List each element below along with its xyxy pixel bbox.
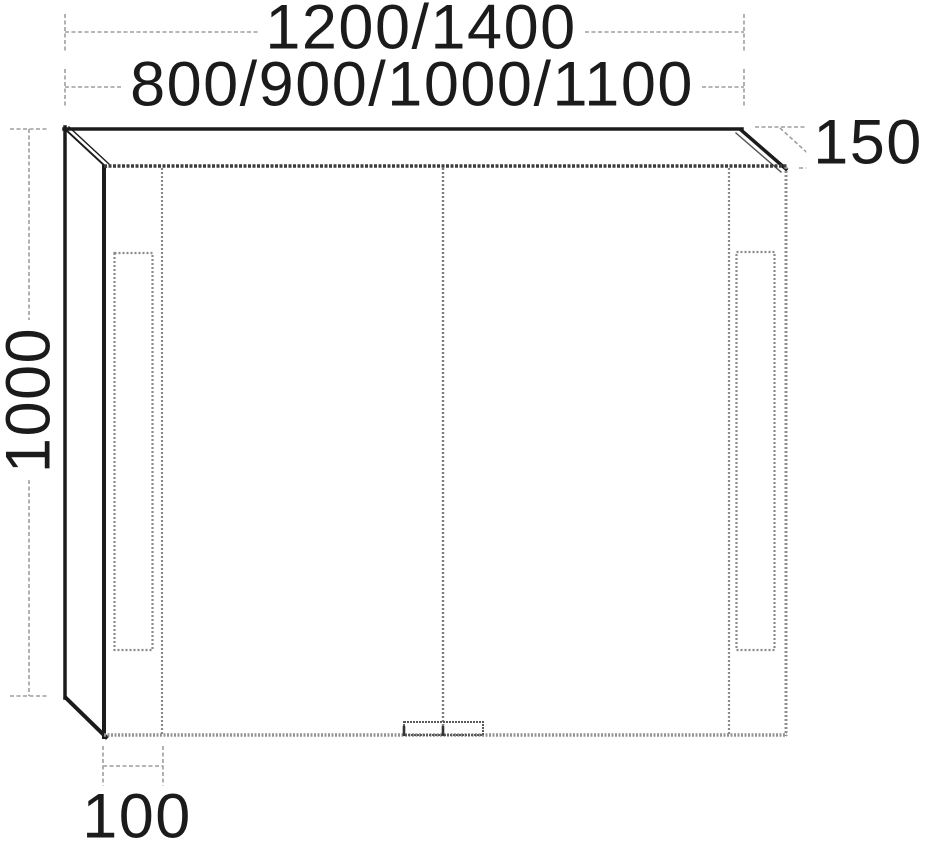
led-strip-right <box>737 252 775 650</box>
top-left-corner-diagonal <box>66 130 106 167</box>
dim-label-side-offset: 100 <box>75 786 199 849</box>
mirror-doors <box>115 168 775 734</box>
drawing-linework <box>0 0 930 854</box>
technical-drawing-canvas: 1200/1400 800/900/1000/1100 150 1000 100 <box>0 0 930 854</box>
cabinet-front-edges <box>104 166 787 736</box>
top-right-corner-diagonal <box>741 130 786 169</box>
top-left-corner-diagonal-inner <box>69 127 109 164</box>
bottom-left-corner-diagonal <box>66 698 106 737</box>
dim-label-depth: 150 <box>806 112 930 175</box>
led-strip-left <box>115 253 153 650</box>
cabinet-carcass-edges <box>64 127 786 737</box>
dim-label-width-variants: 800/900/1000/1100 <box>123 54 701 117</box>
dim-label-height: 1000 <box>0 320 61 480</box>
